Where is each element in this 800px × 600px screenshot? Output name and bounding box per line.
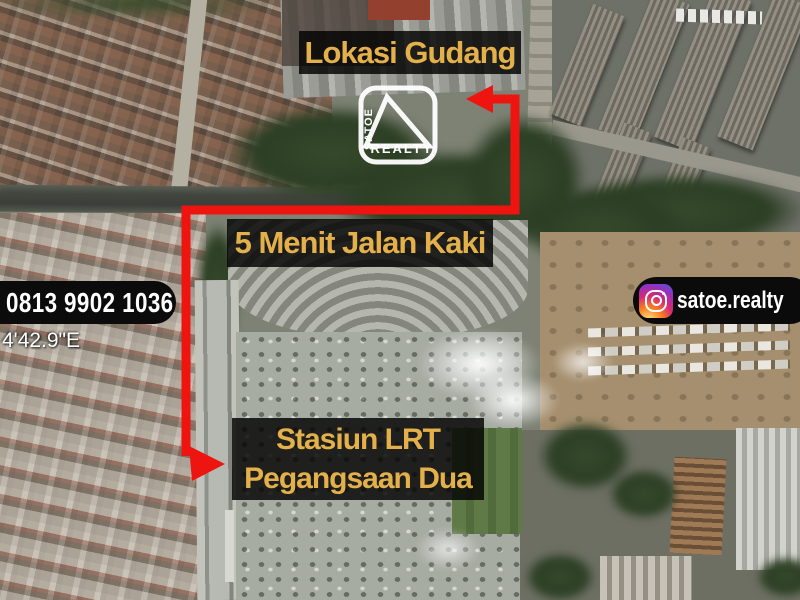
station-label-line2: Pegangsaan Dua — [244, 459, 472, 498]
promo-map-screenshot: SATOE REALTY Lokasi Gudang 5 Menit Jalan… — [0, 0, 800, 600]
instagram-icon-flash-dot — [662, 292, 666, 296]
instagram-icon — [639, 284, 673, 318]
walking-time-label: 5 Menit Jalan Kaki — [227, 219, 493, 267]
station-label-line1: Stasiun LRT — [276, 420, 440, 459]
instagram-badge: satoe.realty — [633, 277, 800, 324]
logo-text-bottom: REALTY — [370, 141, 433, 156]
location-label: Lokasi Gudang — [299, 31, 521, 74]
route-arrowhead-to-warehouse — [466, 85, 493, 113]
phone-badge: 0813 9902 1036 — [0, 281, 176, 324]
satoe-realty-logo: SATOE REALTY — [357, 84, 439, 166]
instagram-handle: satoe.realty — [677, 287, 784, 315]
station-label: Stasiun LRT Pegangsaan Dua — [232, 418, 484, 500]
route-line — [186, 99, 515, 456]
location-label-text: Lokasi Gudang — [305, 35, 516, 71]
walking-time-label-text: 5 Menit Jalan Kaki — [235, 225, 486, 261]
route-arrowhead-to-station — [189, 446, 225, 481]
coordinate-fragment: 4'42.9"E — [2, 329, 80, 353]
phone-number: 0813 9902 1036 — [6, 287, 174, 319]
logo-triangle-roof-icon — [366, 97, 429, 146]
